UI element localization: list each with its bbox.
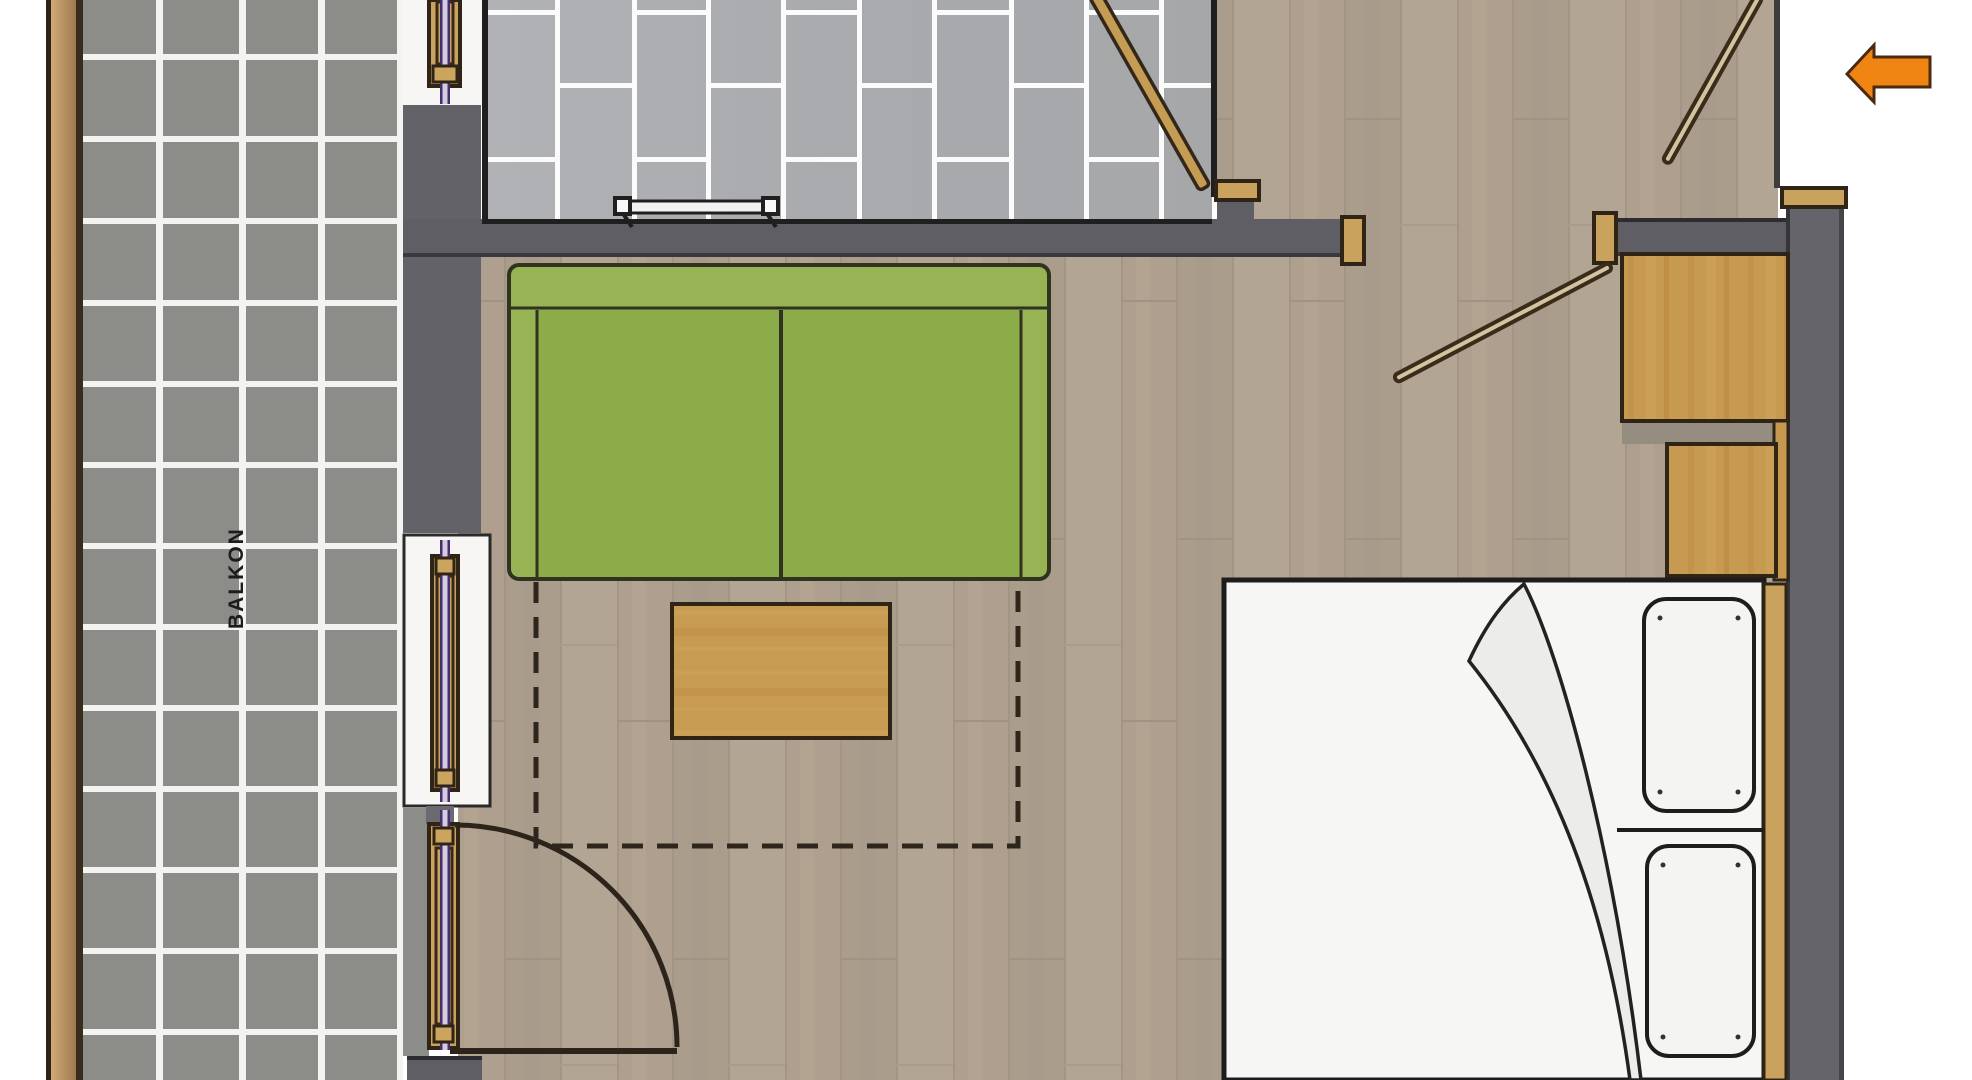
svg-text:BALKON: BALKON: [225, 527, 248, 629]
